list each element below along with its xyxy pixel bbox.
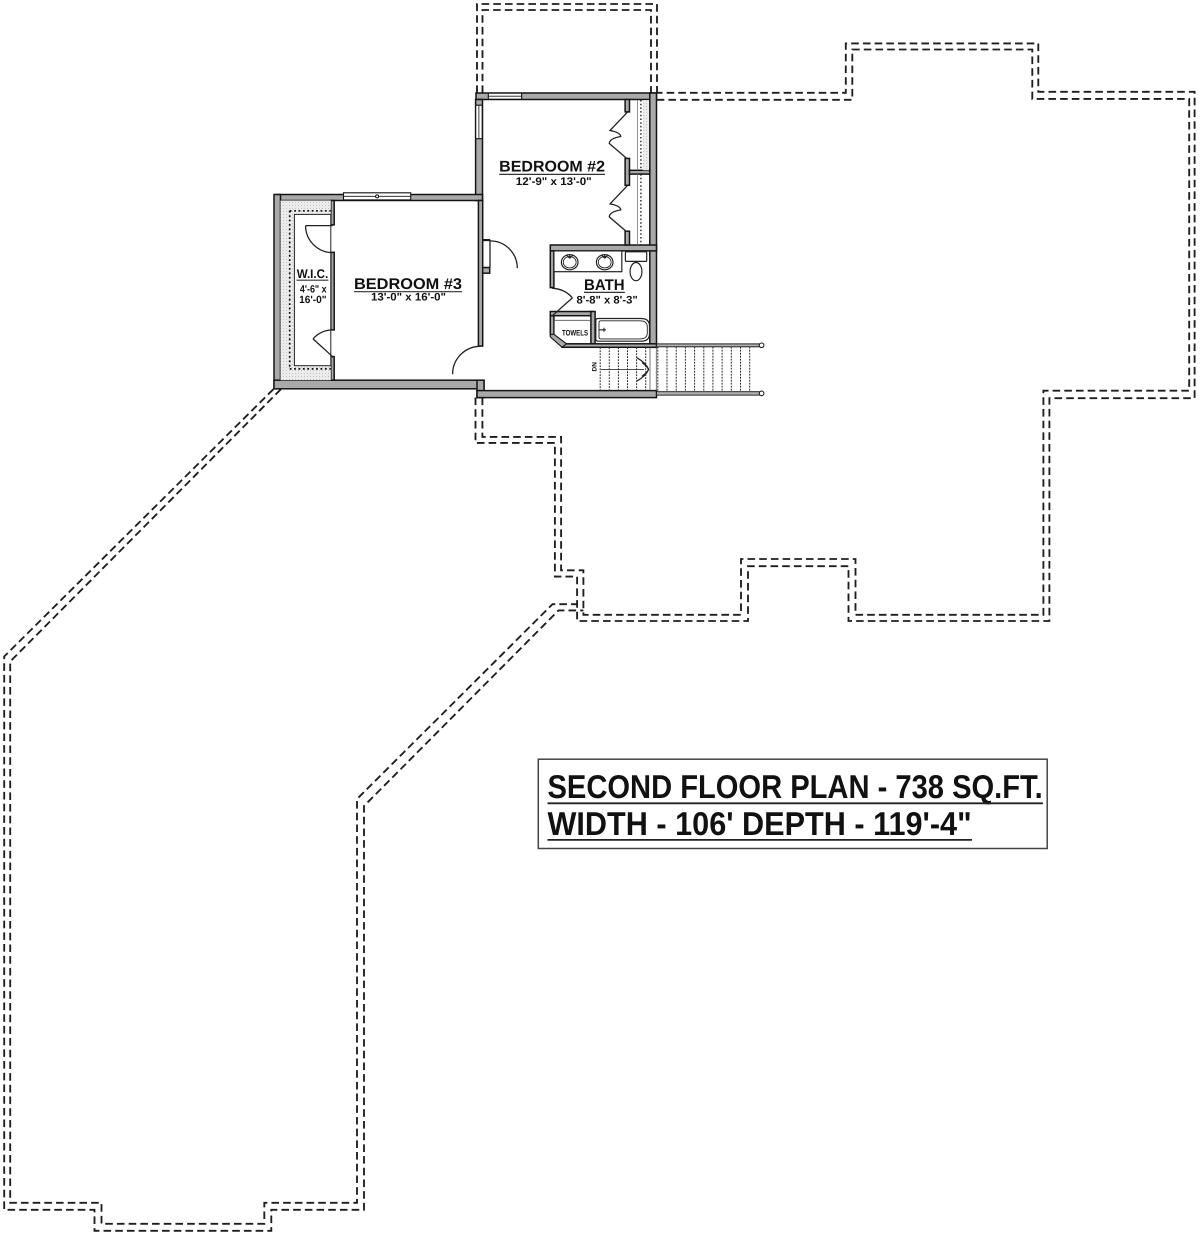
svg-text:SECOND FLOOR PLAN - 738 SQ.FT.: SECOND FLOOR PLAN - 738 SQ.FT. [548, 768, 1043, 805]
svg-text:16'-0": 16'-0" [299, 294, 327, 306]
svg-text:13'-0" x 16'-0": 13'-0" x 16'-0" [371, 292, 446, 304]
svg-text:BATH: BATH [584, 277, 625, 294]
svg-text:8'-8" x 8'-3": 8'-8" x 8'-3" [577, 294, 638, 306]
svg-text:TOWELS: TOWELS [562, 329, 589, 338]
svg-text:BEDROOM #3: BEDROOM #3 [354, 276, 462, 293]
svg-text:DN: DN [592, 362, 599, 372]
svg-text:W.I.C.: W.I.C. [297, 267, 329, 281]
svg-text:BEDROOM #2: BEDROOM #2 [499, 159, 605, 176]
svg-text:WIDTH - 106' DEPTH - 119'-4": WIDTH - 106' DEPTH - 119'-4" [548, 805, 972, 842]
svg-text:12'-9" x 13'-0": 12'-9" x 13'-0" [516, 176, 592, 188]
